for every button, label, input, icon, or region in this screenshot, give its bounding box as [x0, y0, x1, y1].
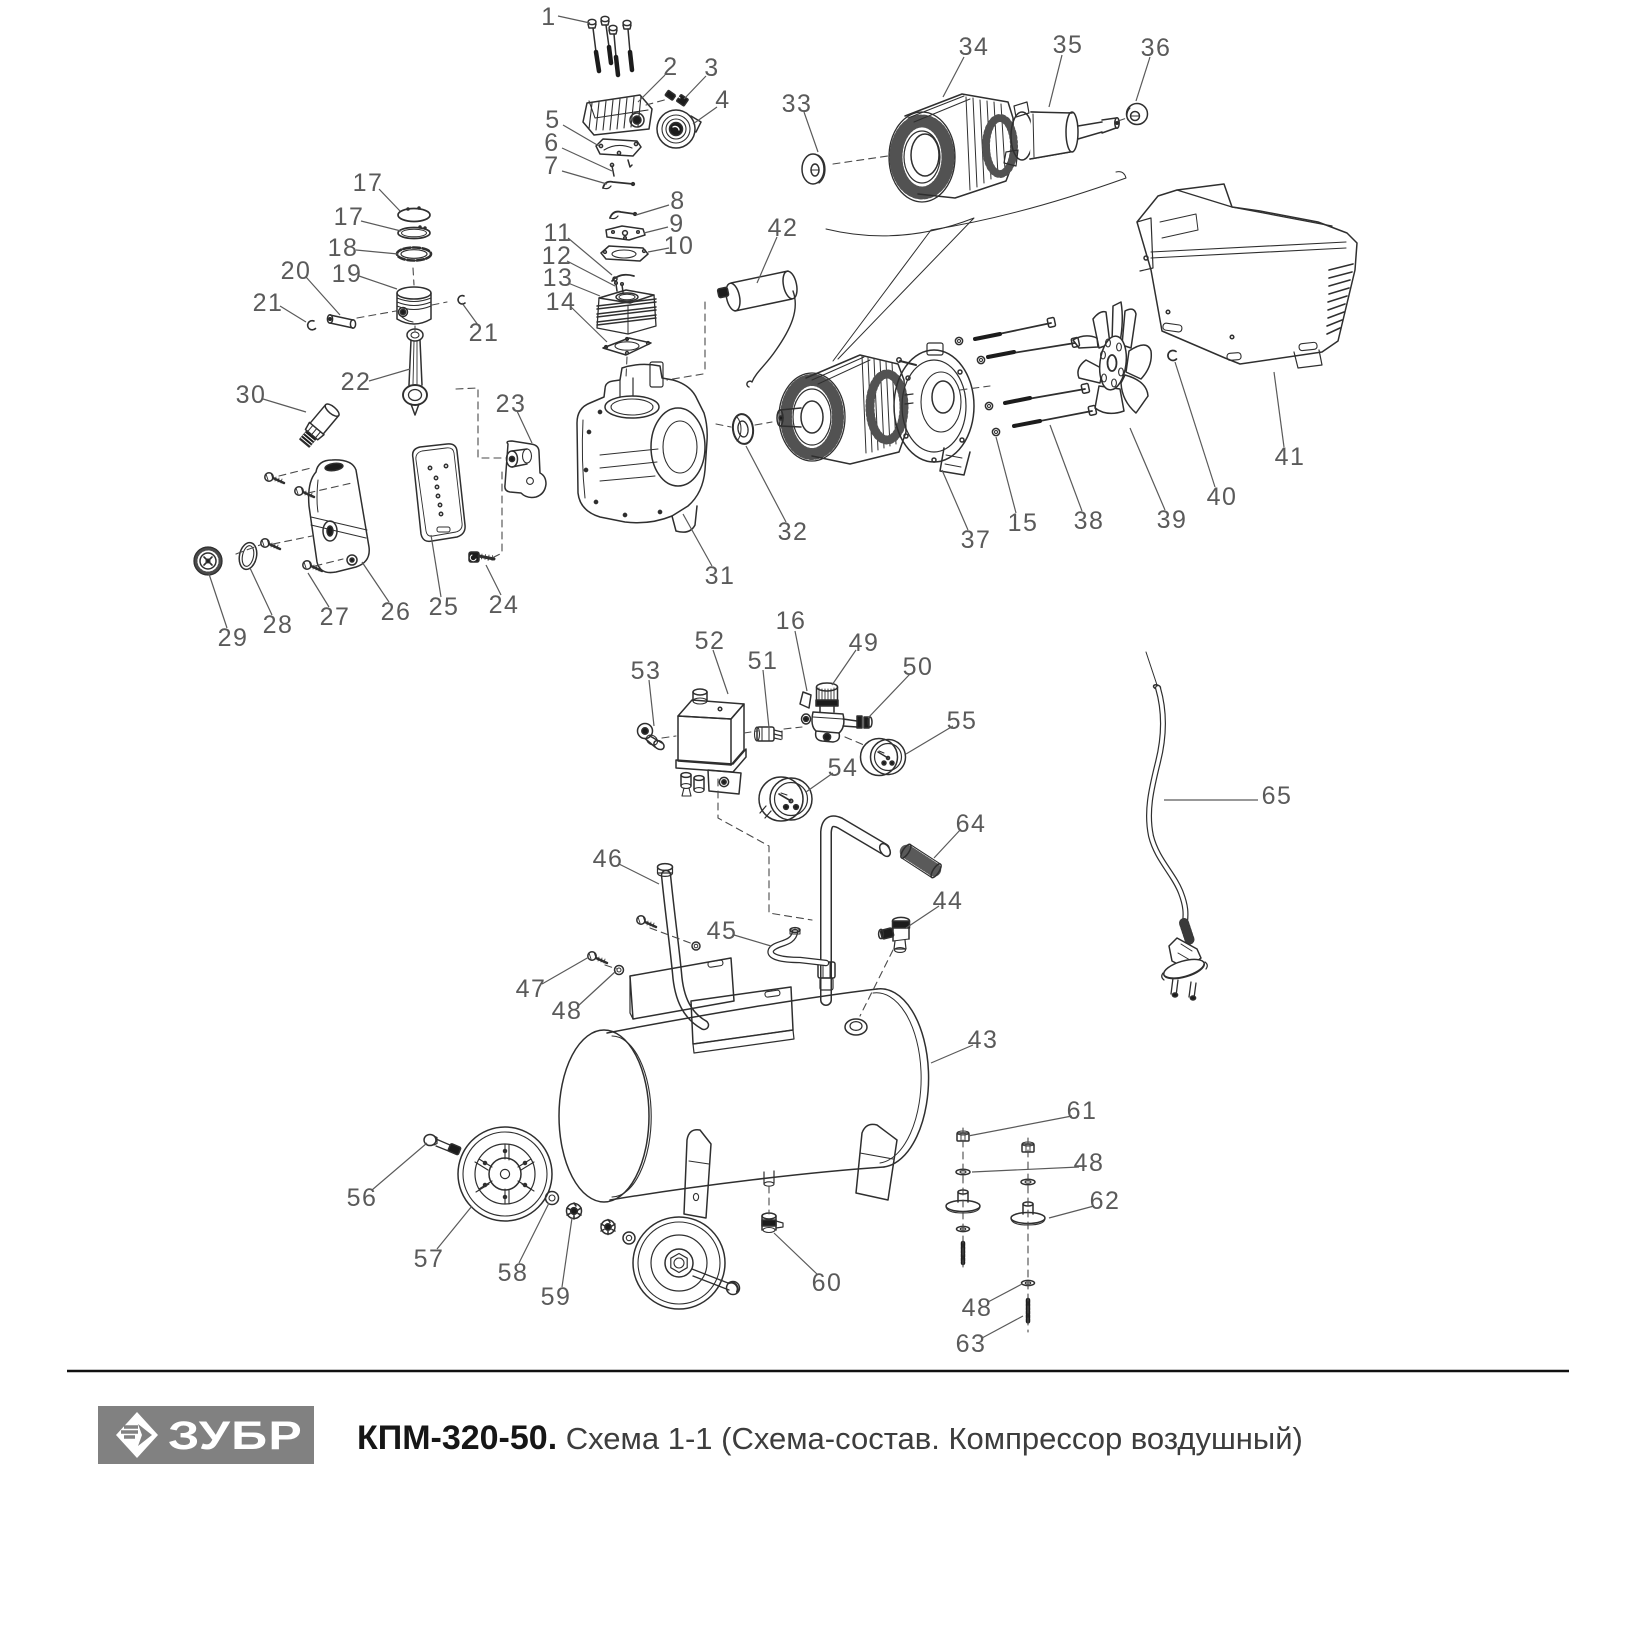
- svg-text:4: 4: [715, 86, 730, 114]
- svg-text:7: 7: [544, 152, 559, 180]
- svg-text:54: 54: [828, 754, 859, 782]
- svg-text:31: 31: [705, 562, 736, 590]
- svg-text:21: 21: [253, 289, 284, 317]
- svg-text:36: 36: [1141, 34, 1172, 62]
- svg-text:38: 38: [1074, 507, 1105, 535]
- svg-text:64: 64: [956, 810, 987, 838]
- svg-text:16: 16: [776, 607, 807, 635]
- svg-text:37: 37: [961, 526, 992, 554]
- svg-text:43: 43: [968, 1026, 999, 1054]
- svg-text:30: 30: [236, 381, 267, 409]
- svg-text:23: 23: [496, 390, 527, 418]
- svg-text:61: 61: [1067, 1097, 1098, 1125]
- svg-text:42: 42: [768, 214, 799, 242]
- svg-text:63: 63: [956, 1330, 987, 1358]
- svg-text:3: 3: [704, 54, 719, 82]
- svg-text:57: 57: [414, 1245, 445, 1273]
- svg-text:44: 44: [933, 887, 964, 915]
- svg-text:34: 34: [959, 33, 990, 61]
- svg-text:53: 53: [631, 657, 662, 685]
- svg-text:49: 49: [849, 629, 880, 657]
- svg-text:56: 56: [347, 1184, 378, 1212]
- svg-text:14: 14: [546, 288, 577, 316]
- svg-text:55: 55: [947, 707, 978, 735]
- svg-text:62: 62: [1090, 1187, 1121, 1215]
- svg-text:22: 22: [341, 368, 372, 396]
- svg-text:45: 45: [707, 917, 738, 945]
- svg-text:50: 50: [903, 653, 934, 681]
- svg-text:27: 27: [320, 603, 351, 631]
- svg-text:19: 19: [332, 260, 363, 288]
- svg-text:26: 26: [381, 598, 412, 626]
- svg-text:2: 2: [663, 53, 678, 81]
- svg-text:39: 39: [1157, 506, 1188, 534]
- svg-text:1: 1: [541, 3, 556, 31]
- svg-text:10: 10: [664, 232, 695, 260]
- svg-text:33: 33: [782, 90, 813, 118]
- svg-text:25: 25: [429, 593, 460, 621]
- svg-text:60: 60: [812, 1269, 843, 1297]
- svg-text:ЗУБР: ЗУБР: [168, 1414, 303, 1458]
- svg-text:59: 59: [541, 1283, 572, 1311]
- svg-text:46: 46: [593, 845, 624, 873]
- svg-text:20: 20: [281, 257, 312, 285]
- svg-text:47: 47: [516, 975, 547, 1003]
- svg-text:48: 48: [962, 1294, 993, 1322]
- svg-text:52: 52: [695, 627, 726, 655]
- svg-text:32: 32: [778, 518, 809, 546]
- svg-text:48: 48: [1074, 1149, 1105, 1177]
- svg-text:17: 17: [353, 169, 384, 197]
- svg-text:51: 51: [748, 647, 779, 675]
- svg-text:48: 48: [552, 997, 583, 1025]
- svg-text:29: 29: [218, 624, 249, 652]
- svg-text:15: 15: [1008, 509, 1039, 537]
- svg-text:24: 24: [489, 591, 520, 619]
- svg-text:65: 65: [1262, 782, 1293, 810]
- svg-text:41: 41: [1275, 443, 1306, 471]
- svg-text:18: 18: [328, 234, 359, 262]
- svg-text:58: 58: [498, 1259, 529, 1287]
- svg-text:КПМ-320-50. Схема 1-1 (Схема-с: КПМ-320-50. Схема 1-1 (Схема-состав. Ком…: [357, 1419, 1303, 1457]
- svg-text:21: 21: [469, 319, 500, 347]
- svg-text:40: 40: [1207, 483, 1238, 511]
- svg-text:28: 28: [263, 611, 294, 639]
- svg-text:35: 35: [1053, 31, 1084, 59]
- svg-text:17: 17: [334, 203, 365, 231]
